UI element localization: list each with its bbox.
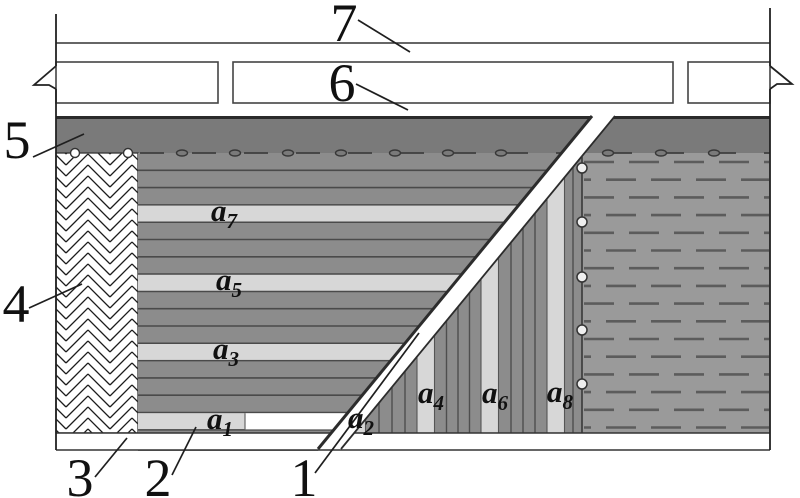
left-break-symbol xyxy=(34,66,56,89)
structure-block-right xyxy=(688,62,770,103)
wall-top-circle-2 xyxy=(124,149,133,158)
surface-structure-blocks xyxy=(56,62,770,103)
ref-label-2: 2 xyxy=(145,448,172,498)
ref-label-5: 5 xyxy=(4,110,31,170)
mining-section-diagram: 7 6 5 4 3 2 1 a7 a5 a3 a1 a2 a4 a6 a8 xyxy=(0,0,800,498)
ref-label-6: 6 xyxy=(329,53,356,113)
ref-label-3: 3 xyxy=(67,448,94,498)
backfill-wall-column xyxy=(56,153,138,433)
leader-7 xyxy=(358,20,410,52)
roof-stratum-band xyxy=(56,116,770,153)
wall-top-circle-1 xyxy=(71,149,80,158)
ref-label-1: 1 xyxy=(291,448,318,498)
structure-block-left xyxy=(56,62,218,103)
ref-label-7: 7 xyxy=(331,0,358,53)
unmined-region xyxy=(582,153,770,433)
structure-block-middle xyxy=(233,62,673,103)
ref-label-4: 4 xyxy=(3,274,30,334)
figure-canvas: 7 6 5 4 3 2 1 a7 a5 a3 a1 a2 a4 a6 a8 xyxy=(0,0,800,498)
right-break-symbol xyxy=(770,66,792,89)
